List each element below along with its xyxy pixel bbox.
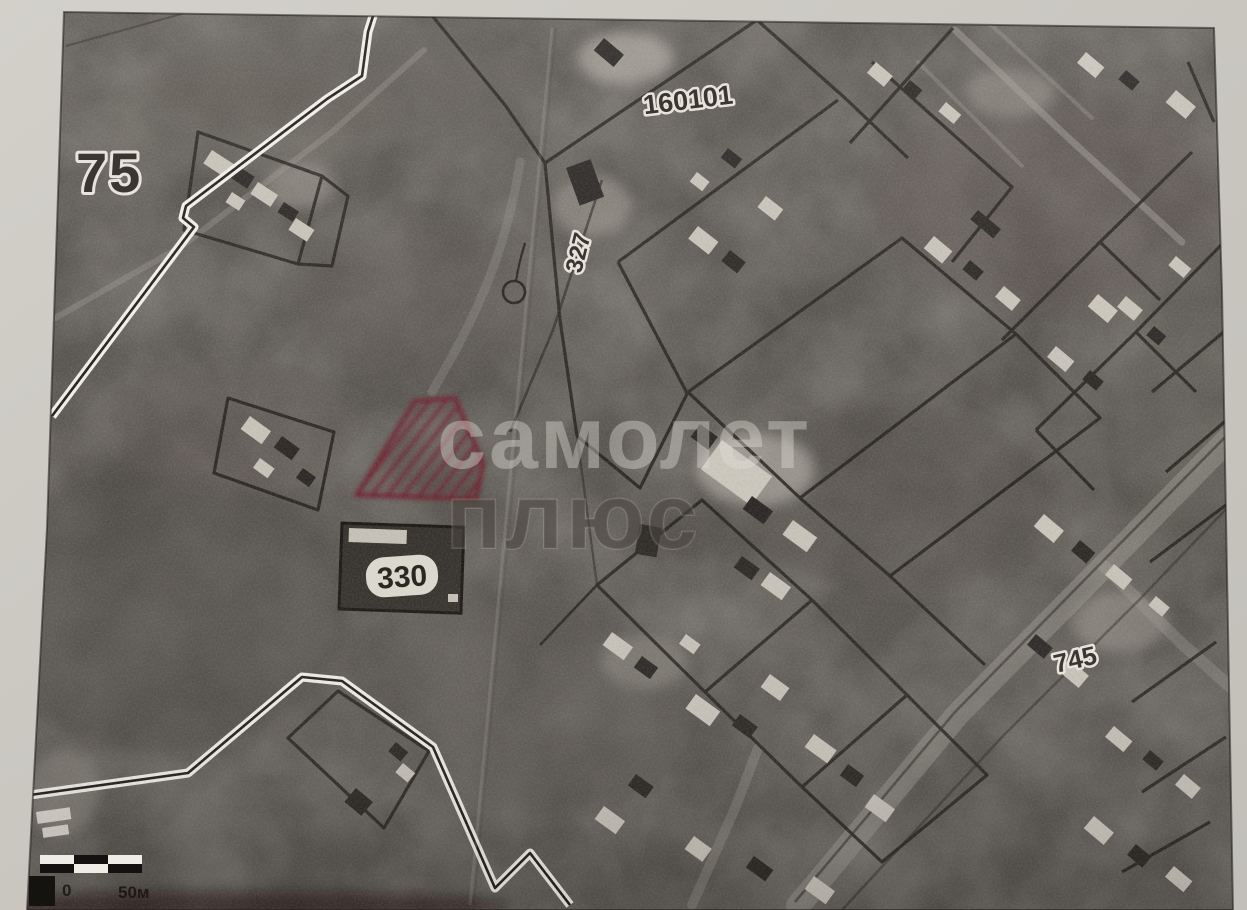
parcel-330-label-text: 330 — [376, 559, 428, 595]
parcel-330-label: 330 — [365, 554, 440, 599]
scale-end-label: 50м — [118, 883, 150, 902]
watermark-line2: плюс — [446, 466, 701, 568]
scale-bar-corner-block — [29, 876, 55, 906]
scale-start-label: 0 — [62, 881, 71, 900]
map-photo: 75 160101 327 745 330 самолет плюс 0 50м — [0, 0, 1247, 910]
scanned-map-photo: 75 160101 327 745 330 самолет плюс 0 50м — [0, 0, 1247, 910]
quarter-75-label: 75 — [76, 141, 142, 204]
map-canvas: 75 160101 327 745 330 самолет плюс 0 50м — [0, 0, 1247, 910]
